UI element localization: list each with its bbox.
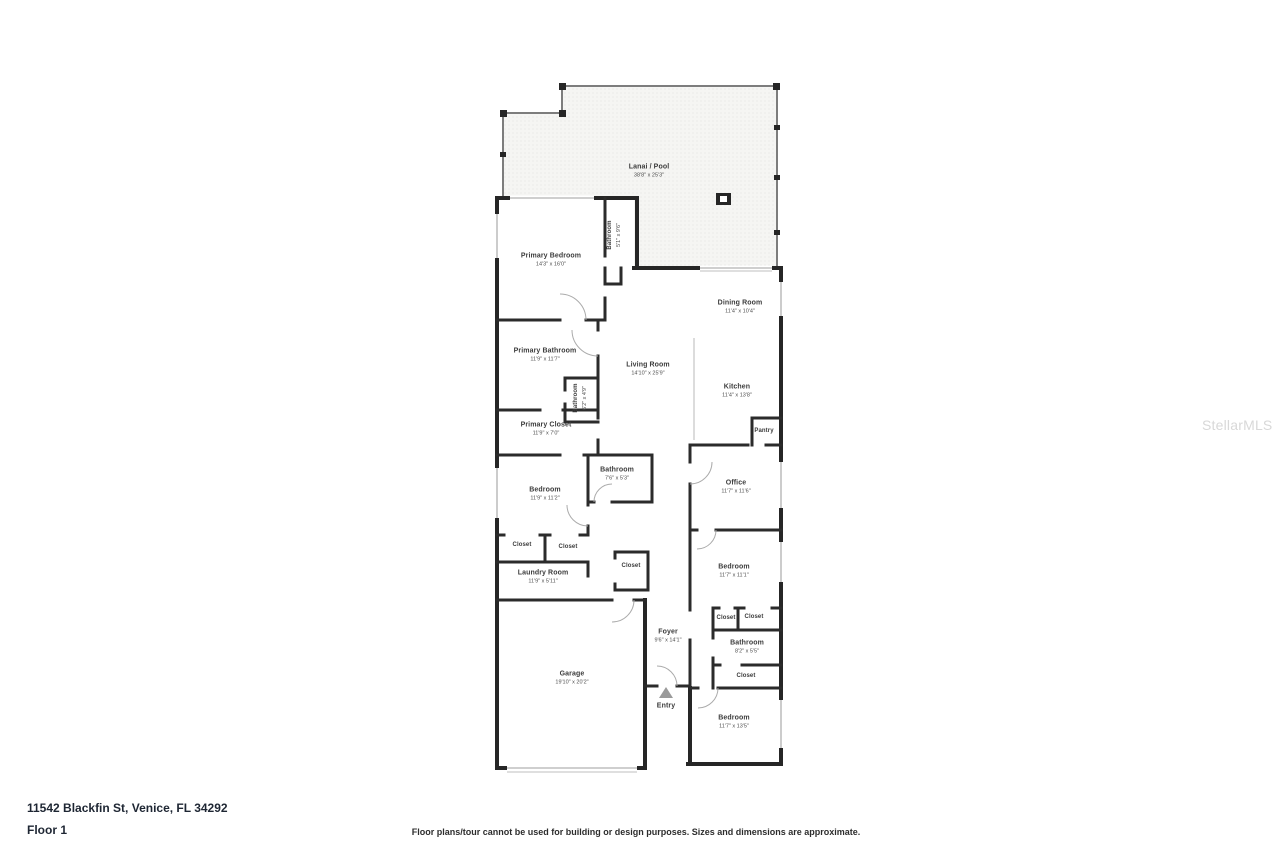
room-label-foyer: Foyer 9'6" x 14'1"	[654, 627, 681, 644]
pool-equipment-icon	[716, 193, 731, 205]
room-name: Bathroom	[607, 220, 615, 249]
room-label-closet-left-2: Closet	[559, 544, 578, 552]
room-name: Closet	[559, 544, 578, 552]
room-dims: 11'9" x 11'2"	[529, 495, 560, 502]
room-dims: 14'10" x 25'9"	[626, 370, 670, 377]
room-name: Kitchen	[722, 382, 752, 391]
room-label-dining-room: Dining Room 11'4" x 10'4"	[718, 298, 763, 315]
room-name: Bedroom	[718, 562, 749, 571]
room-label-primary-bedroom: Primary Bedroom 14'3" x 16'0"	[521, 251, 581, 268]
room-name: Bedroom	[529, 485, 560, 494]
room-label-bathroom-small: Bathroom 6'2" x 4'9"	[573, 383, 589, 412]
room-label-bedroom-right: Bedroom 11'7" x 11'1"	[718, 562, 749, 579]
room-label-primary-bathroom: Primary Bathroom 11'9" x 11'7"	[514, 346, 577, 363]
floor-label: Floor 1	[27, 823, 67, 837]
room-label-bathroom-lanai: Bathroom 5'1" x 9'6"	[607, 220, 623, 249]
room-label-bedroom-bottom: Bedroom 11'7" x 13'5"	[718, 713, 749, 730]
disclaimer-text: Floor plans/tour cannot be used for buil…	[412, 827, 861, 837]
room-label-bathroom-center: Bathroom 7'6" x 5'3"	[600, 465, 634, 482]
room-label-laundry: Laundry Room 11'9" x 5'11"	[518, 568, 569, 585]
room-name: Laundry Room	[518, 568, 569, 577]
room-name: Bathroom	[730, 638, 764, 647]
room-dims: 38'8" x 25'3"	[629, 172, 669, 179]
property-address: 11542 Blackfin St, Venice, FL 34292	[27, 801, 228, 815]
room-label-lanai: Lanai / Pool 38'8" x 25'3"	[629, 162, 669, 179]
room-label-office: Office 11'7" x 11'6"	[721, 478, 750, 495]
floorplan-drawing	[0, 0, 1280, 853]
floor-plan-page: Lanai / Pool 38'8" x 25'3" Primary Bedro…	[0, 0, 1280, 853]
room-name: Closet	[737, 673, 756, 681]
room-dims: 11'7" x 11'6"	[721, 488, 750, 495]
room-dims: 6'2" x 4'9"	[582, 383, 589, 412]
room-label-kitchen: Kitchen 11'4" x 13'8"	[722, 382, 752, 399]
room-dims: 11'4" x 10'4"	[718, 308, 763, 315]
room-dims: 11'7" x 11'1"	[718, 572, 749, 579]
room-dims: 19'10" x 20'2"	[555, 679, 588, 686]
room-name: Primary Bathroom	[514, 346, 577, 355]
room-name: Closet	[622, 563, 641, 571]
room-label-closet-left-1: Closet	[513, 542, 532, 550]
room-label-closet-right-2: Closet	[745, 614, 764, 622]
room-name: Bathroom	[600, 465, 634, 474]
room-label-closet-right-3: Closet	[737, 673, 756, 681]
room-label-entry: Entry	[657, 701, 675, 710]
room-name: Office	[721, 478, 750, 487]
room-name: Garage	[555, 669, 588, 678]
room-name: Bedroom	[718, 713, 749, 722]
room-dims: 5'1" x 9'6"	[616, 220, 623, 249]
room-label-living-room: Living Room 14'10" x 25'9"	[626, 360, 670, 377]
room-dims: 11'9" x 11'7"	[514, 356, 577, 363]
room-label-closet-right-1: Closet	[717, 615, 736, 623]
room-name: Bathroom	[573, 383, 581, 412]
stellar-mls-watermark: StellarMLS	[1202, 417, 1272, 433]
room-name: Primary Bedroom	[521, 251, 581, 260]
room-name: Lanai / Pool	[629, 162, 669, 171]
room-name: Primary Closet	[521, 420, 572, 429]
room-dims: 8'2" x 5'5"	[730, 648, 764, 655]
room-name: Dining Room	[718, 298, 763, 307]
room-dims: 7'6" x 5'3"	[600, 475, 634, 482]
room-name: Closet	[717, 615, 736, 623]
room-label-bedroom-left: Bedroom 11'9" x 11'2"	[529, 485, 560, 502]
room-name: Closet	[513, 542, 532, 550]
room-label-bathroom-right: Bathroom 8'2" x 5'5"	[730, 638, 764, 655]
room-label-closet-hall: Closet	[622, 563, 641, 571]
room-label-primary-closet: Primary Closet 11'9" x 7'0"	[521, 420, 572, 437]
room-dims: 11'7" x 13'5"	[718, 723, 749, 730]
room-label-garage: Garage 19'10" x 20'2"	[555, 669, 588, 686]
entry-arrow-icon	[659, 687, 673, 698]
room-dims: 9'6" x 14'1"	[654, 637, 681, 644]
room-dims: 11'9" x 7'0"	[521, 430, 572, 437]
room-dims: 14'3" x 16'0"	[521, 261, 581, 268]
room-name: Foyer	[654, 627, 681, 636]
room-name: Closet	[745, 614, 764, 622]
room-dims: 11'9" x 5'11"	[518, 578, 569, 585]
room-name: Pantry	[754, 428, 773, 436]
room-dims: 11'4" x 13'8"	[722, 392, 752, 399]
room-name: Living Room	[626, 360, 670, 369]
room-label-pantry: Pantry	[754, 428, 773, 436]
room-name: Entry	[657, 701, 675, 710]
